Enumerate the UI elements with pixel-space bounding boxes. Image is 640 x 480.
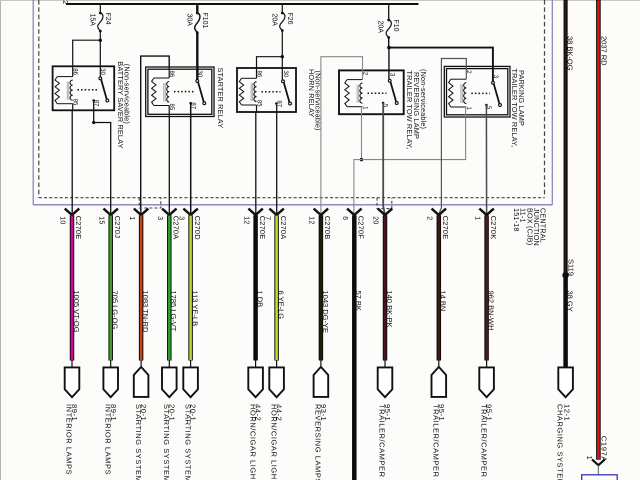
svg-text:86: 86: [72, 68, 78, 75]
svg-text:705 LG-OG: 705 LG-OG: [111, 291, 120, 330]
svg-text:1005 VT-OG: 1005 VT-OG: [72, 291, 81, 333]
svg-text:C270E: C270E: [74, 216, 83, 240]
svg-text:85: 85: [168, 104, 174, 111]
svg-text:962 BN-WH: 962 BN-WH: [487, 291, 496, 331]
svg-text:86: 86: [256, 71, 262, 78]
svg-text:C270K: C270K: [489, 216, 498, 240]
svg-text:(Non-serviceable): (Non-serviceable): [419, 69, 428, 129]
svg-text:15: 15: [97, 216, 104, 224]
svg-text:STARTER RELAY: STARTER RELAY: [216, 68, 225, 129]
svg-text:6: 6: [341, 216, 348, 220]
svg-text:C270B: C270B: [323, 216, 332, 240]
svg-text:C270F: C270F: [357, 216, 366, 240]
svg-text:1: 1: [128, 216, 135, 220]
svg-text:STARTING SYSTEM: STARTING SYSTEM: [183, 404, 192, 480]
svg-text:PARKING LAMP: PARKING LAMP: [517, 70, 526, 126]
svg-text:38 GY: 38 GY: [566, 291, 575, 312]
svg-text:CHARGING SYSTEM: CHARGING SYSTEM: [556, 404, 565, 480]
svg-text:HORN/CIGAR LIGHTER: HORN/CIGAR LIGHTER: [269, 404, 278, 480]
svg-text:2037 RD: 2037 RD: [600, 36, 609, 66]
svg-text:86: 86: [168, 71, 174, 78]
svg-text:INTERIOR LAMPS: INTERIOR LAMPS: [65, 404, 74, 475]
svg-text:151-18: 151-18: [512, 208, 521, 232]
svg-text:30: 30: [282, 71, 288, 78]
svg-text:F101: F101: [201, 13, 208, 29]
svg-text:15A: 15A: [88, 14, 95, 27]
svg-text:140 BK-PK: 140 BK-PK: [385, 291, 394, 328]
svg-text:1043 DG-YE: 1043 DG-YE: [321, 291, 330, 334]
svg-text:2: 2: [426, 216, 433, 220]
svg-text:C270E: C270E: [441, 216, 450, 240]
svg-text:30: 30: [196, 71, 202, 78]
svg-text:85: 85: [256, 100, 262, 107]
svg-text:10: 10: [59, 216, 66, 224]
svg-text:C270J: C270J: [113, 216, 122, 239]
svg-text:12: 12: [242, 216, 249, 224]
svg-text:20A: 20A: [270, 14, 277, 27]
svg-text:TRAILER/CAMPER ADAPTER: TRAILER/CAMPER ADAPTER: [378, 404, 387, 480]
svg-text:1083 TN-RD: 1083 TN-RD: [141, 291, 150, 334]
svg-text:1: 1: [585, 456, 592, 460]
svg-text:20A: 20A: [377, 21, 384, 34]
svg-text:S119: S119: [566, 259, 575, 276]
svg-text:C197A: C197A: [600, 436, 609, 463]
svg-text:1: 1: [473, 216, 480, 220]
svg-text:HORN/CIGAR LIGHTER: HORN/CIGAR LIGHTER: [248, 404, 257, 480]
svg-text:C270D: C270D: [193, 216, 202, 241]
svg-text:F10: F10: [392, 20, 399, 32]
svg-text:F24: F24: [104, 13, 111, 25]
svg-text:STARTING SYSTEM: STARTING SYSTEM: [162, 404, 171, 480]
svg-text:3: 3: [156, 216, 163, 220]
svg-text:F26: F26: [286, 13, 293, 25]
svg-text:STARTING SYSTEM: STARTING SYSTEM: [134, 404, 143, 480]
svg-text:(Non-serviceable): (Non-serviceable): [122, 64, 131, 124]
svg-text:30A: 30A: [185, 14, 192, 27]
svg-text:30: 30: [99, 68, 105, 75]
svg-text:85: 85: [72, 99, 78, 106]
svg-text:INTERIOR LAMPS: INTERIOR LAMPS: [103, 404, 112, 475]
svg-text:3: 3: [177, 216, 184, 220]
svg-text:C270A: C270A: [279, 216, 288, 240]
svg-text:TRAILER/CAMPER ADAPTER: TRAILER/CAMPER ADAPTER: [432, 404, 441, 480]
svg-text:6 YE-LG: 6 YE-LG: [277, 291, 286, 320]
svg-text:1 DB: 1 DB: [256, 291, 265, 308]
svg-text:20: 20: [372, 216, 379, 224]
svg-text:113 YE-LB: 113 YE-LB: [191, 291, 200, 327]
svg-text:REVERSING LAMPS: REVERSING LAMPS: [314, 404, 323, 480]
svg-text:2: 2: [61, 0, 68, 4]
svg-text:38 BK-OG: 38 BK-OG: [566, 36, 575, 71]
svg-text:1785 LG-VT: 1785 LG-VT: [169, 291, 178, 332]
svg-text:14 BN: 14 BN: [439, 291, 448, 312]
svg-text:7: 7: [263, 216, 270, 220]
svg-text:12: 12: [308, 216, 315, 224]
svg-text:57 BK: 57 BK: [354, 291, 363, 311]
svg-text:TRAILER/CAMPER ADAPTER: TRAILER/CAMPER ADAPTER: [479, 404, 488, 480]
